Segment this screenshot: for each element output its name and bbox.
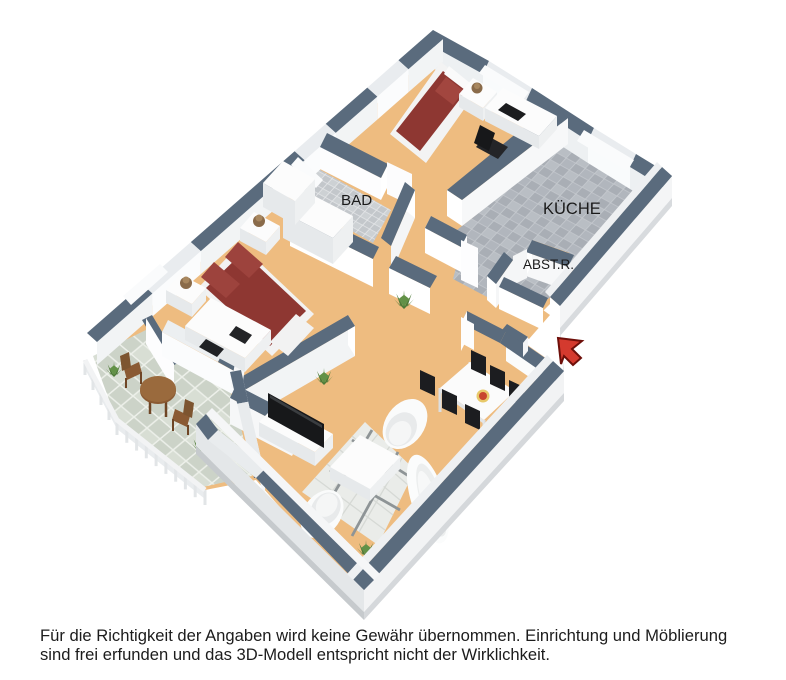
- svg-text:BAD: BAD: [341, 192, 372, 209]
- svg-text:KÜCHE: KÜCHE: [543, 200, 601, 218]
- svg-text:sind frei erfunden und das 3D-: sind frei erfunden und das 3D-Modell ent…: [40, 645, 550, 664]
- svg-text:Für die Richtigkeit der Angabe: Für die Richtigkeit der Angaben wird kei…: [40, 626, 727, 645]
- svg-text:ABST.R.: ABST.R.: [523, 257, 574, 272]
